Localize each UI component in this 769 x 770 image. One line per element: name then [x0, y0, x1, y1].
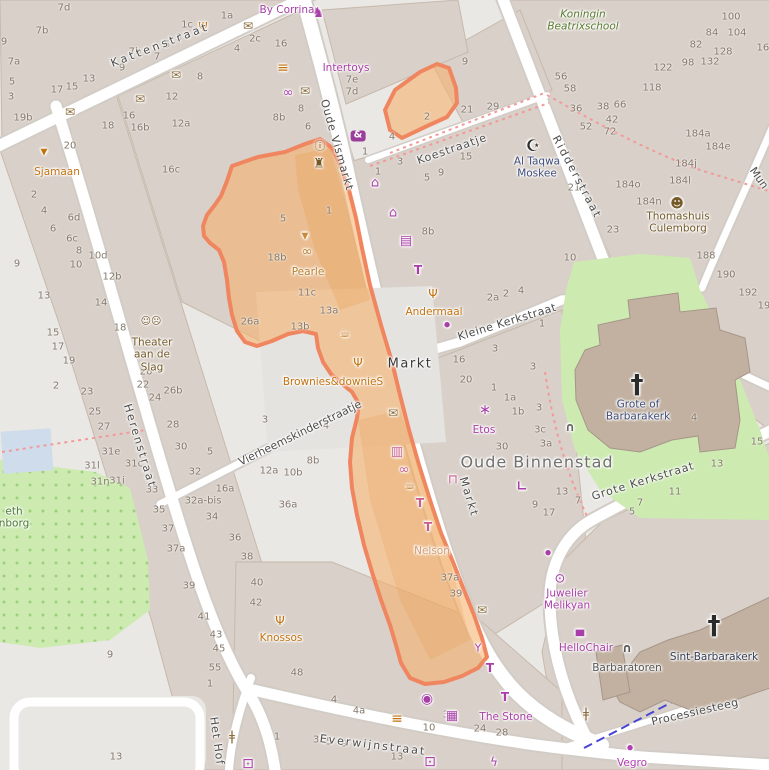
- orchard-dots: [0, 460, 150, 648]
- water-area: [1, 428, 54, 473]
- map-base: [0, 0, 769, 770]
- map-canvas[interactable]: 7d7b97a5319b17151397b7531c1a2c41681212a1…: [0, 0, 769, 770]
- parking-area: [8, 696, 206, 770]
